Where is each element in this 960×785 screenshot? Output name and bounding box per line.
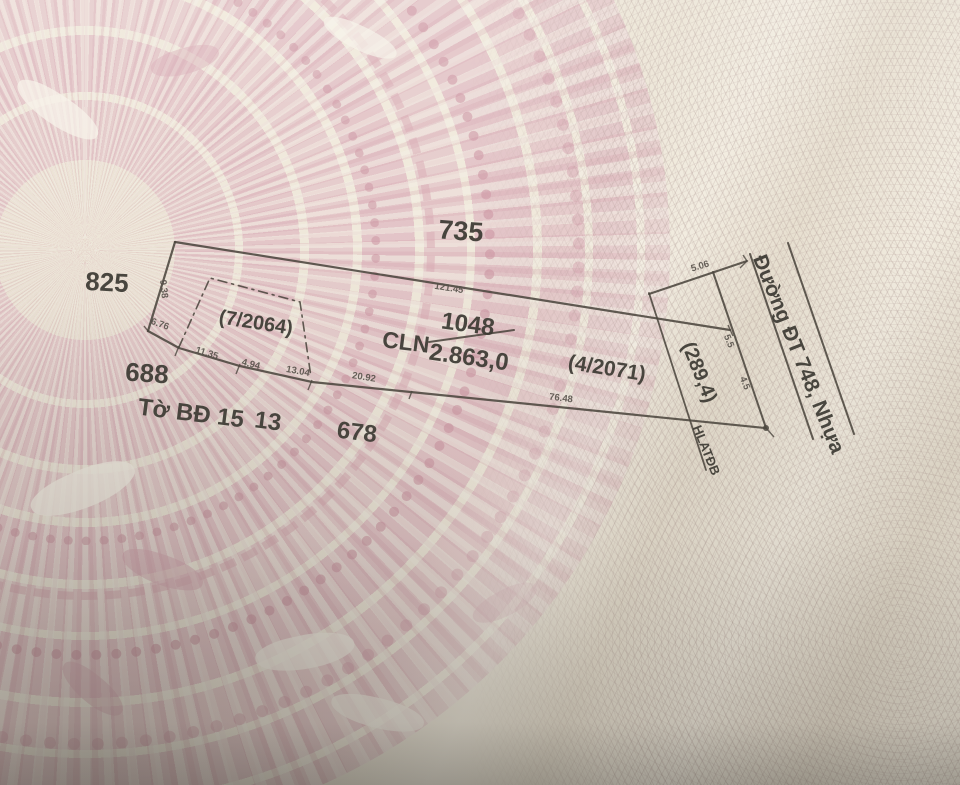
dim-bottom-3: 4.94 xyxy=(241,357,262,372)
parcel-right-edge-road-side xyxy=(713,272,766,428)
neighbor-parcel-825: 825 xyxy=(85,266,130,298)
neighbor-parcel-688: 688 xyxy=(124,357,169,390)
corridor-abbreviation: HLATĐB xyxy=(690,423,724,477)
photo-of-land-certificate: 735 825 688 Tờ BĐ 15 13 678 (7/2064) CLN… xyxy=(0,0,960,785)
dim-right-edge-2: 4.5 xyxy=(737,375,752,392)
land-use-code: CLN xyxy=(381,326,431,358)
corridor-strip-area: (289,4) xyxy=(677,339,721,406)
dim-bottom-2: 11.35 xyxy=(194,345,220,363)
dim-jog-edge: 5.06 xyxy=(690,259,711,275)
corner-tail xyxy=(144,326,148,331)
neighbor-parcel-735: 735 xyxy=(437,214,484,247)
neighbor-parcel-678: 678 xyxy=(335,417,378,449)
road-name-label: Đường ĐT 748, Nhựa xyxy=(748,251,849,457)
sub-parcel-label: (7/2064) xyxy=(217,306,294,339)
parcel-area: 2.863,0 xyxy=(427,339,510,377)
dim-bottom-6: 76.48 xyxy=(548,392,573,406)
dim-top-edge: 121.45 xyxy=(434,281,465,297)
dim-left-edge: 9.38 xyxy=(157,279,170,299)
map-sheet-label: Tờ BĐ 15 xyxy=(136,394,245,434)
parcel-number: 1048 xyxy=(440,307,497,341)
dim-bottom-5: 20.92 xyxy=(351,370,376,385)
neighbor-parcel-13: 13 xyxy=(253,406,283,436)
parcel-ref-label: (4/2071) xyxy=(566,351,647,386)
dim-bottom-1: 6.76 xyxy=(149,316,170,333)
corner-node-dot xyxy=(763,425,769,431)
parcel-sketch: 735 825 688 Tờ BĐ 15 13 678 (7/2064) CLN… xyxy=(0,0,960,785)
